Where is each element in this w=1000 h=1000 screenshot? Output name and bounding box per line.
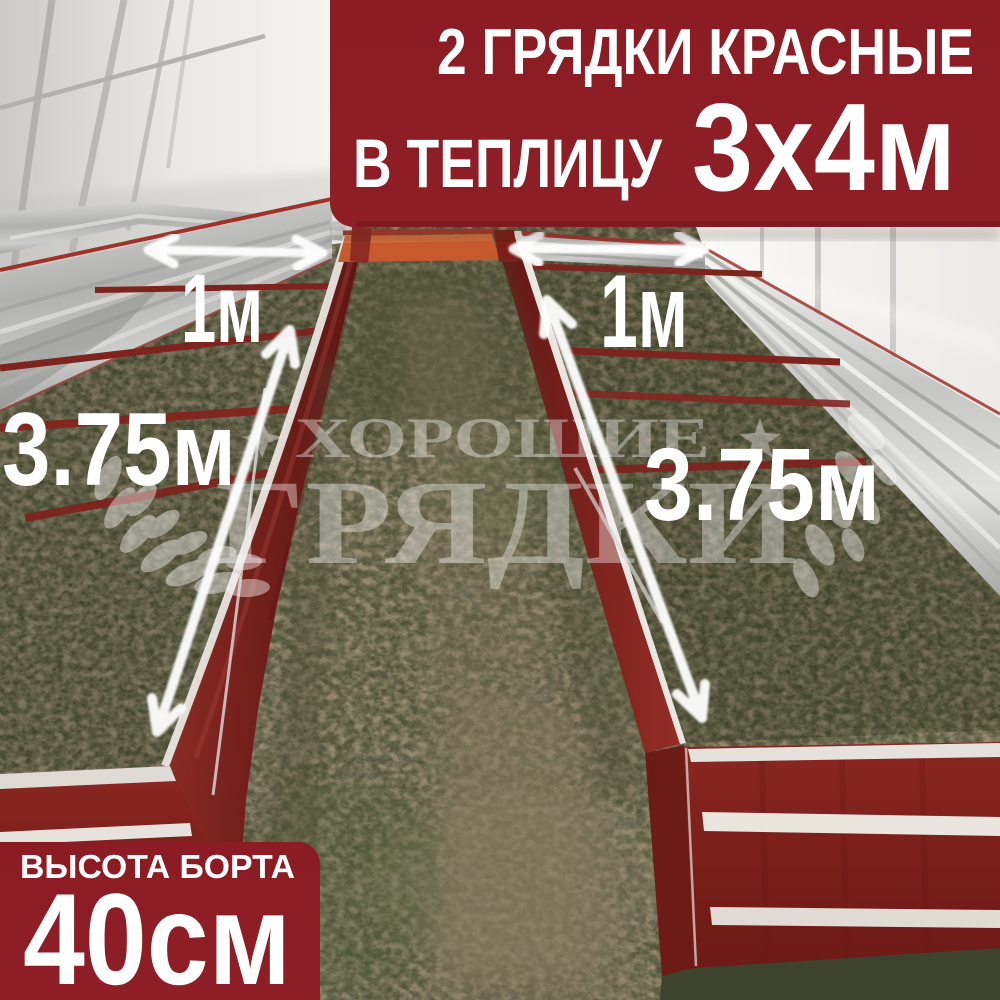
svg-text:В ТЕПЛИЦУ: В ТЕПЛИЦУ — [353, 125, 663, 202]
svg-text:3.75м: 3.75м — [644, 427, 880, 542]
svg-text:3.75м: 3.75м — [2, 392, 236, 508]
svg-text:1м: 1м — [181, 254, 263, 363]
svg-text:2 ГРЯДКИ КРАСНЫЕ: 2 ГРЯДКИ КРАСНЫЕ — [437, 15, 974, 88]
svg-text:3х4м: 3х4м — [692, 79, 956, 217]
svg-text:1м: 1м — [600, 254, 688, 370]
svg-text:40см: 40см — [23, 866, 291, 1000]
